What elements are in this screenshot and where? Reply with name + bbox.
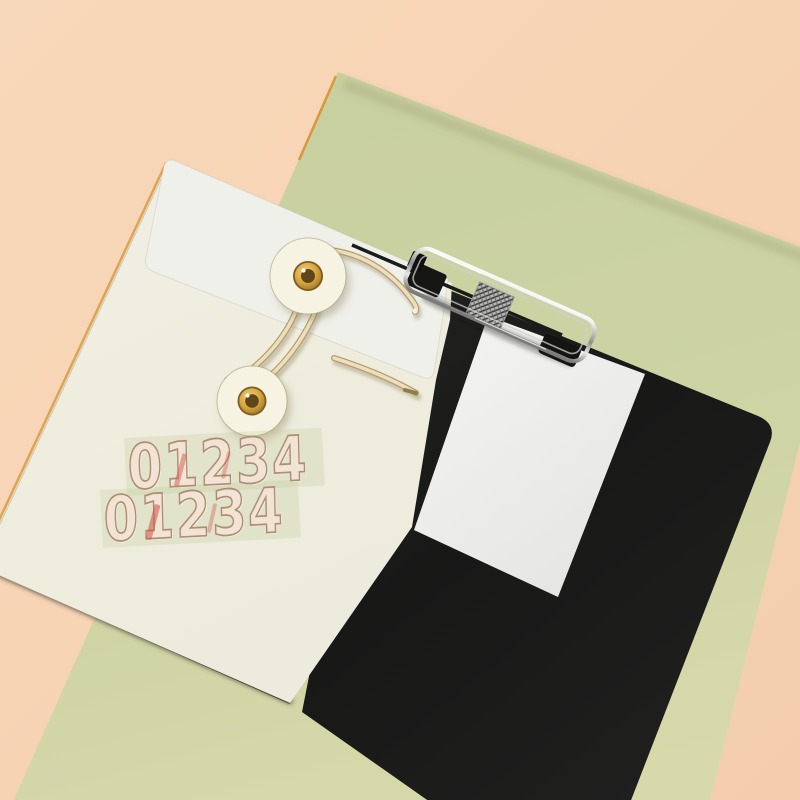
number-sticker-row-2: 01234 (103, 480, 285, 551)
photo-scene (0, 0, 800, 800)
grommet-bottom-highlight (245, 393, 249, 397)
photo-canvas: 01234 01234 (0, 0, 800, 800)
grommet-top-highlight (301, 268, 305, 272)
string-tip-light (412, 308, 417, 313)
